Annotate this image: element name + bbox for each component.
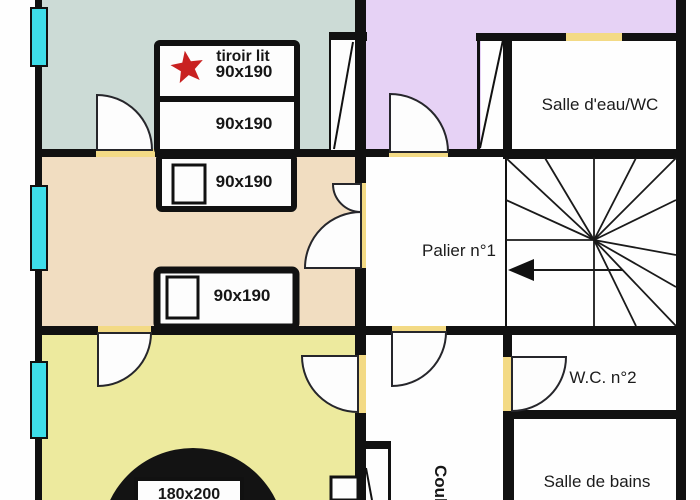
svg-text:Palier n°1: Palier n°1: [422, 241, 496, 260]
svg-text:90x190: 90x190: [216, 62, 273, 81]
svg-text:Salle d'eau/WC: Salle d'eau/WC: [542, 95, 659, 114]
svg-text:W.C. n°2: W.C. n°2: [569, 368, 636, 387]
svg-text:90x190: 90x190: [214, 286, 271, 305]
svg-text:180x200: 180x200: [158, 486, 220, 500]
svg-text:90x190: 90x190: [216, 114, 273, 133]
svg-text:Salle de bains: Salle de bains: [544, 472, 651, 491]
svg-text:Couloir: Couloir: [431, 465, 450, 500]
svg-text:90x190: 90x190: [216, 172, 273, 191]
